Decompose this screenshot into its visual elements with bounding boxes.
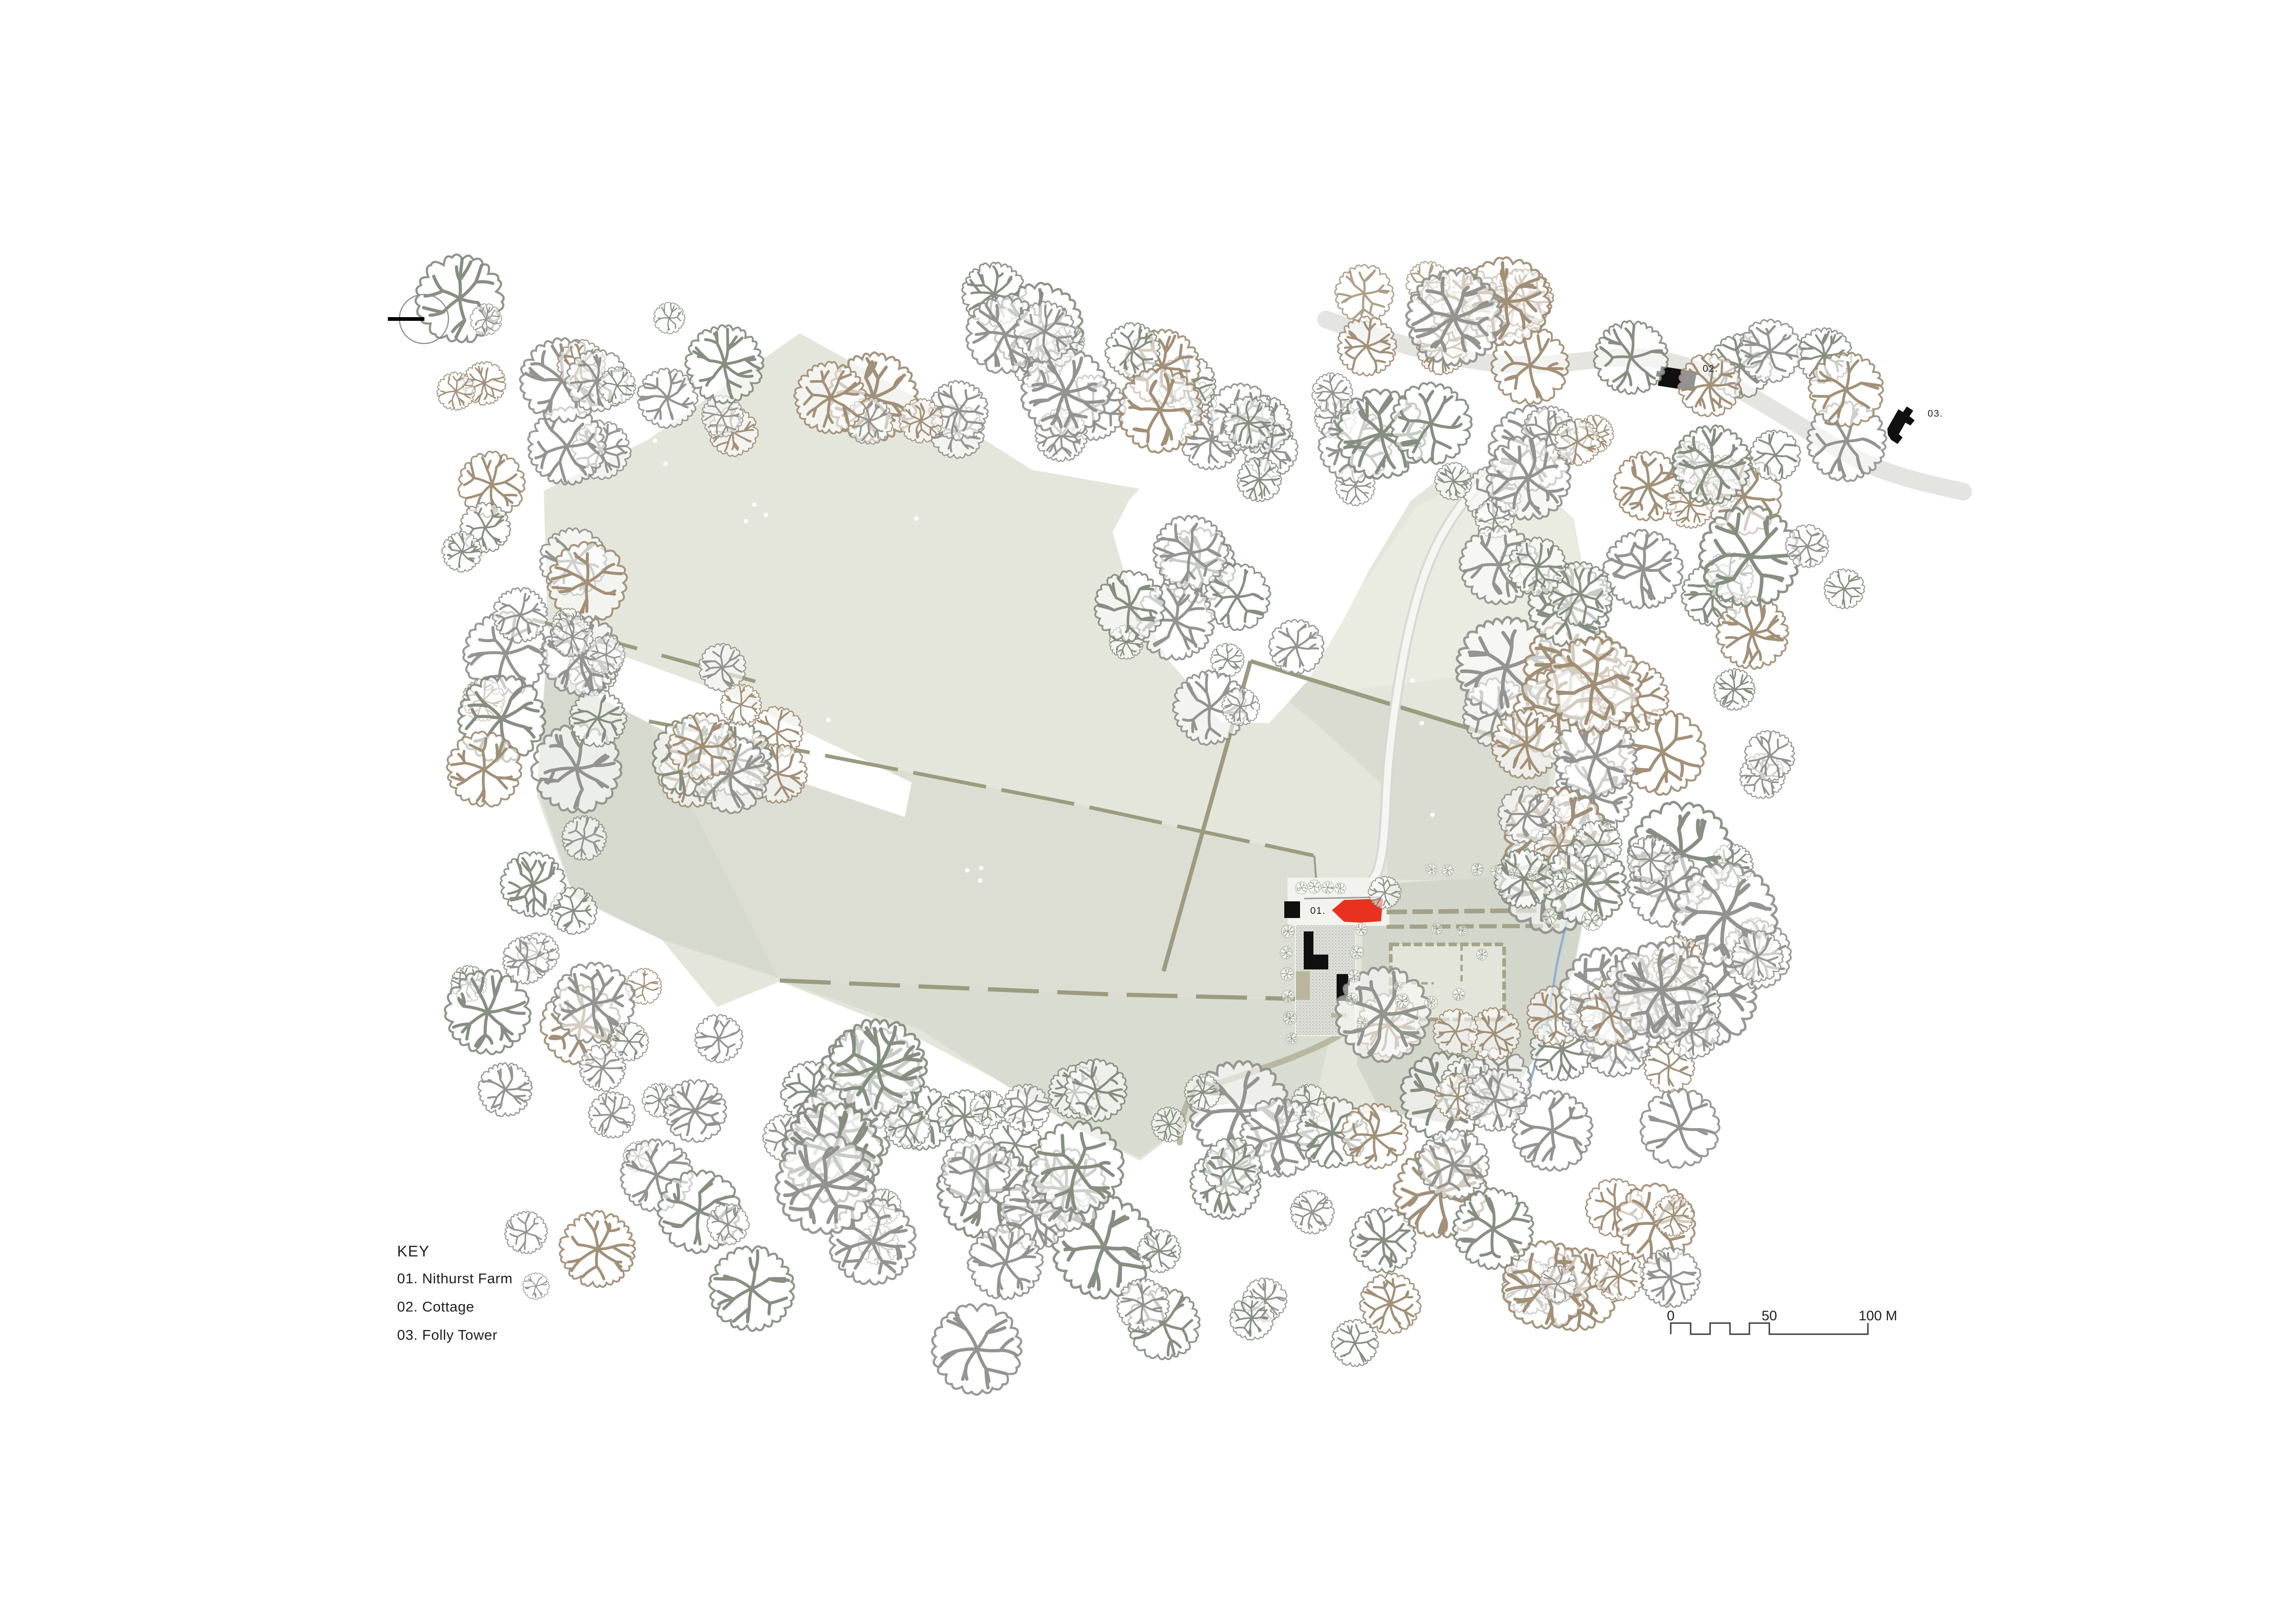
tree-symbol xyxy=(1824,569,1864,609)
tree-symbol xyxy=(523,1273,549,1299)
tree-symbol xyxy=(589,1092,635,1138)
legend-item-3: 03. Folly Tower xyxy=(397,1327,498,1343)
tree-symbol xyxy=(1641,1089,1720,1168)
tree-symbol xyxy=(668,713,736,780)
barn-north xyxy=(1284,901,1300,918)
tree-symbol xyxy=(447,731,521,806)
tree-symbol xyxy=(1627,836,1674,883)
tree-symbol xyxy=(1014,301,1075,362)
tree-symbol xyxy=(1286,1033,1298,1044)
tree-symbol xyxy=(721,684,762,725)
tree-symbol xyxy=(1453,988,1465,1001)
site-plan-drawing: 01. 02. 03. KEY 01. Nithurst Farm 02. Co… xyxy=(0,0,2296,1624)
tree-symbol xyxy=(1335,265,1394,323)
tree-symbol xyxy=(653,302,685,334)
tree-symbol xyxy=(560,1211,635,1287)
tree-symbol xyxy=(1360,1273,1421,1333)
tree-symbol xyxy=(685,325,763,403)
tree-symbol xyxy=(1546,637,1641,732)
tree-symbol xyxy=(1603,530,1683,609)
tree-symbol xyxy=(1269,619,1324,674)
scale-label-100: 100 M xyxy=(1859,1308,1897,1324)
legend-item-2: 02. Cottage xyxy=(397,1299,474,1315)
scale-label-50: 50 xyxy=(1761,1308,1777,1324)
tree-symbol xyxy=(1282,925,1295,938)
tree-symbol xyxy=(709,1246,794,1331)
tree-symbol xyxy=(1716,596,1788,669)
tree-symbol xyxy=(932,1304,1021,1395)
folly-tower xyxy=(1887,406,1915,444)
scale-label-0: 0 xyxy=(1667,1308,1675,1324)
cottage-label: 02. xyxy=(1703,363,1718,374)
tree-symbol xyxy=(1594,1251,1644,1301)
tree-symbol xyxy=(1290,1190,1334,1234)
tree-symbol xyxy=(1594,321,1668,394)
tree-symbol xyxy=(695,1015,743,1063)
folly-label: 03. xyxy=(1928,408,1943,419)
scale-bar: 0 50 100 M xyxy=(1667,1308,1898,1334)
legend-item-1: 01. Nithurst Farm xyxy=(397,1270,513,1287)
tree-symbol xyxy=(478,1063,532,1117)
tree-symbol xyxy=(1745,731,1795,781)
tree-symbol xyxy=(1494,849,1554,908)
tree-symbol xyxy=(1750,430,1800,481)
tree-symbol xyxy=(1435,462,1472,500)
tree-symbol xyxy=(1355,924,1368,936)
site-plan-page: 01. 02. 03. KEY 01. Nithurst Farm 02. Co… xyxy=(0,0,2296,1624)
tree-symbol xyxy=(1713,668,1755,710)
farm-label: 01. xyxy=(1310,906,1326,916)
tree-symbol xyxy=(1418,1129,1489,1199)
tree-symbol xyxy=(1508,537,1566,596)
tree-symbol xyxy=(1433,1009,1478,1055)
tree-symbol xyxy=(1498,786,1556,843)
scale-bar-line xyxy=(1671,1323,1868,1334)
tree-symbol xyxy=(664,1080,726,1142)
tree-symbol xyxy=(1335,883,1346,894)
legend: KEY 01. Nithurst Farm 02. Cottage 03. Fo… xyxy=(397,1243,513,1343)
legend-title: KEY xyxy=(397,1243,430,1260)
tree-symbol xyxy=(610,1022,648,1061)
tree-symbol xyxy=(1295,882,1308,894)
tree-symbol xyxy=(505,1212,548,1254)
tree-symbol xyxy=(829,1019,927,1116)
